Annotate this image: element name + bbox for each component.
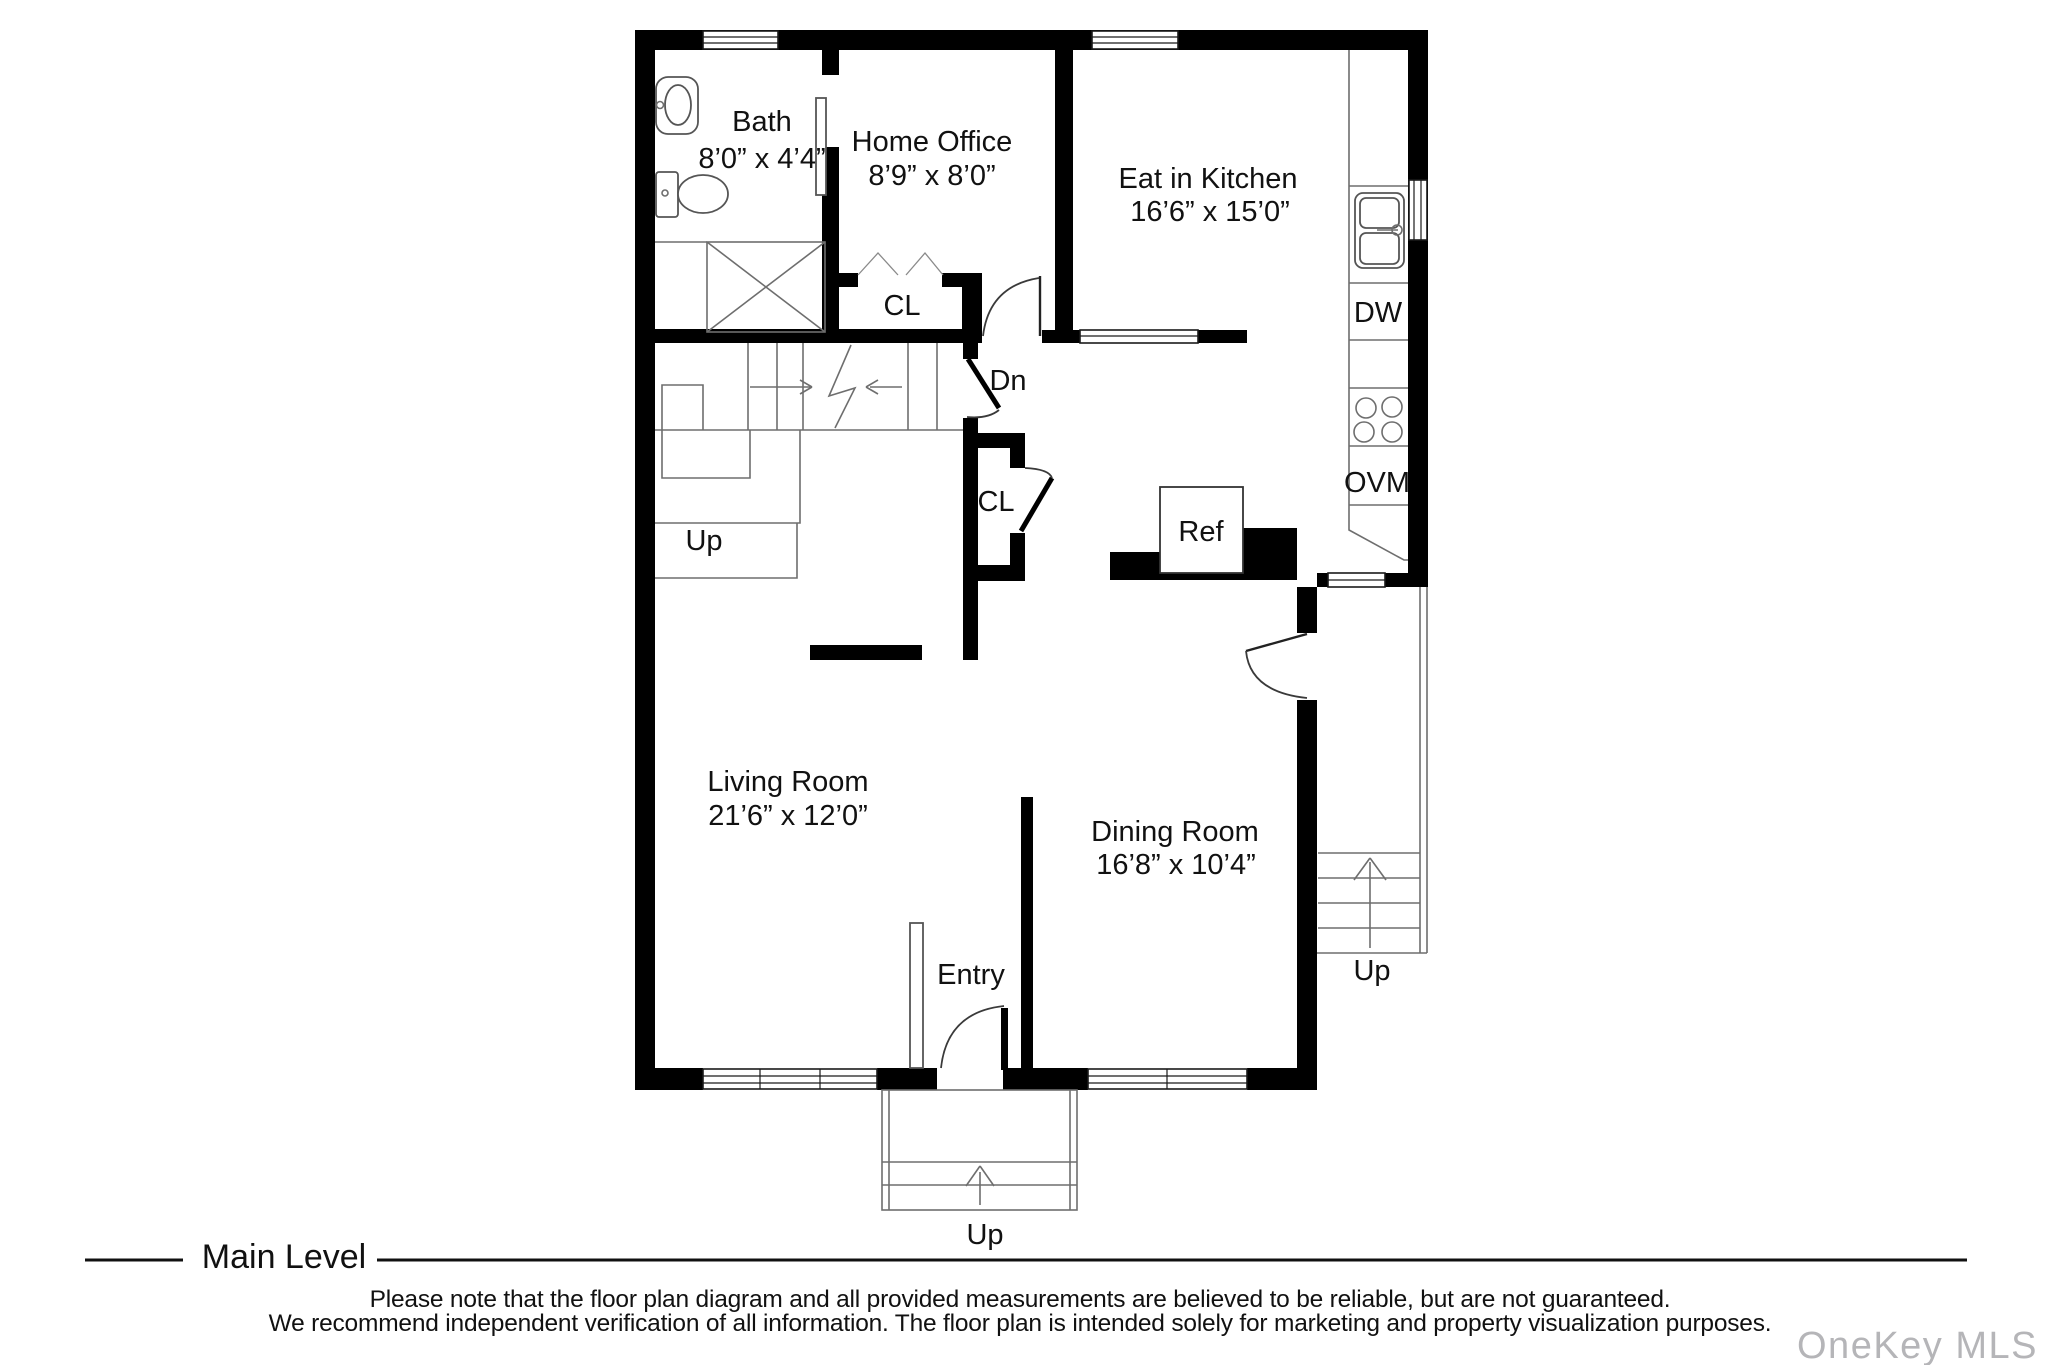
entry-partition <box>910 923 923 1068</box>
stove-burners-icon <box>1354 397 1402 442</box>
side-porch-up-label: Up <box>1353 955 1390 987</box>
front-stoop-stairs <box>882 1090 1077 1210</box>
toilet-icon <box>656 172 728 217</box>
bath-sink-icon <box>656 77 698 134</box>
living-room-window-icon <box>703 1069 877 1089</box>
living-room-label: Living Room <box>707 766 868 798</box>
kitchen-dims: 16’6” x 15’0” <box>1130 196 1290 228</box>
entry-label: Entry <box>937 959 1005 991</box>
closet-bifold-doors-icon <box>858 253 943 275</box>
dining-room-window-icon <box>1088 1069 1247 1089</box>
front-stoop-up-label: Up <box>966 1219 1003 1251</box>
side-porch-stairs <box>1317 587 1427 953</box>
hall-closet-door-icon <box>1021 468 1052 531</box>
living-room-dims: 21’6” x 12’0” <box>708 800 868 832</box>
closet-label: CL <box>883 290 920 322</box>
stairs-up-label: Up <box>685 525 722 557</box>
entry-door-icon <box>941 1006 1008 1070</box>
bath-label: Bath <box>732 106 792 138</box>
kitchen-porch-door-icon <box>1328 573 1385 587</box>
kitchen-passthrough-window-icon <box>1080 330 1198 343</box>
office-door-icon <box>983 276 1040 336</box>
shower-icon <box>655 242 825 332</box>
kitchen-side-window-icon <box>1409 180 1427 240</box>
footer: Main Level Please note that the floor pl… <box>85 1238 2038 1365</box>
home-office-label: Home Office <box>852 126 1013 158</box>
bath-window-icon <box>703 31 778 49</box>
stair-break-icon <box>750 345 902 428</box>
oven-microwave-label: OVM <box>1344 467 1410 499</box>
dining-room-label: Dining Room <box>1091 816 1259 848</box>
stairs-down-label: Dn <box>989 365 1026 397</box>
kitchen-top-window-icon <box>1092 31 1178 49</box>
dishwasher-label: DW <box>1354 297 1403 329</box>
level-title: Main Level <box>202 1238 366 1276</box>
kitchen-label: Eat in Kitchen <box>1119 163 1298 195</box>
dining-porch-door-gap <box>1296 633 1318 700</box>
dining-room-dims: 16’8” x 10’4” <box>1096 849 1256 881</box>
disclaimer-line-2: We recommend independent verification of… <box>269 1310 1772 1337</box>
hall-closet-label: CL <box>977 486 1014 518</box>
kitchen-sink-icon <box>1355 193 1404 268</box>
disclaimer-line-1: Please note that the floor plan diagram … <box>370 1286 1671 1313</box>
refrigerator-label: Ref <box>1178 516 1224 548</box>
home-office-dims: 8’9” x 8’0” <box>868 160 995 192</box>
bath-dims: 8’0” x 4’4” <box>698 143 825 175</box>
floor-plan-canvas: Bath 8’0” x 4’4” Home Office 8’9” x 8’0”… <box>0 0 2048 1365</box>
mls-watermark: OneKey MLS <box>1797 1325 2038 1365</box>
floor-plan-page: Bath 8’0” x 4’4” Home Office 8’9” x 8’0”… <box>0 0 2048 1365</box>
walls <box>635 30 1428 1090</box>
